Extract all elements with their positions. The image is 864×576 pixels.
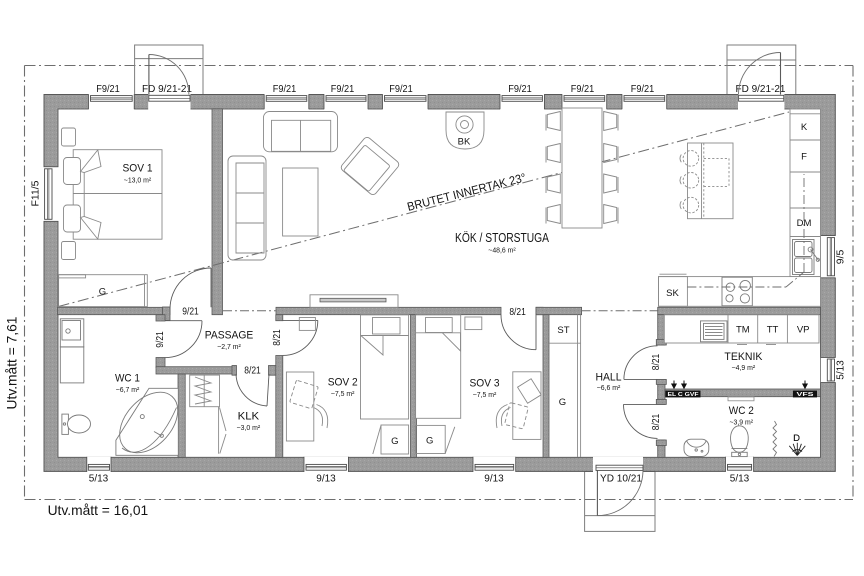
svg-text:ST: ST (557, 325, 569, 336)
svg-text:9/13: 9/13 (316, 474, 336, 485)
svg-text:8/21: 8/21 (244, 366, 261, 377)
svg-text:5/13: 5/13 (836, 360, 847, 380)
svg-text:9/21: 9/21 (182, 307, 199, 318)
svg-text:TM: TM (736, 325, 750, 336)
svg-text:~4,9 m²: ~4,9 m² (732, 365, 756, 372)
svg-text:9/21: 9/21 (155, 331, 166, 348)
svg-text:F11/5: F11/5 (31, 180, 42, 206)
svg-text:~3,0 m²: ~3,0 m² (237, 425, 261, 432)
svg-text:SOV 1: SOV 1 (123, 163, 153, 175)
svg-text:TT: TT (767, 325, 779, 336)
svg-text:~48,6 m²: ~48,6 m² (488, 248, 516, 255)
svg-text:SK: SK (666, 288, 679, 299)
svg-text:PASSAGE: PASSAGE (205, 330, 254, 342)
svg-text:TEKNIK: TEKNIK (724, 351, 762, 363)
svg-text:~3,9 m²: ~3,9 m² (730, 420, 754, 427)
svg-text:8/21: 8/21 (509, 307, 526, 318)
svg-text:~13,0 m²: ~13,0 m² (124, 178, 152, 185)
svg-text:WC 1: WC 1 (115, 373, 140, 385)
svg-text:WC 2: WC 2 (729, 405, 754, 417)
svg-text:~6,6 m²: ~6,6 m² (597, 385, 621, 392)
svg-text:FD 9/21-21: FD 9/21-21 (142, 84, 192, 95)
svg-text:KLK: KLK (238, 411, 260, 423)
svg-text:~7,5 m²: ~7,5 m² (473, 392, 497, 399)
svg-text:F: F (801, 152, 807, 163)
svg-text:F9/21: F9/21 (389, 84, 413, 95)
svg-text:G: G (99, 287, 106, 298)
svg-text:K: K (801, 122, 808, 133)
svg-text:~7,5 m²: ~7,5 m² (331, 391, 355, 398)
svg-text:8/21: 8/21 (651, 353, 662, 370)
svg-text:G: G (426, 436, 433, 447)
svg-text:F9/21: F9/21 (571, 84, 595, 95)
svg-text:KÖK / STORSTUGA: KÖK / STORSTUGA (455, 230, 549, 245)
svg-text:G: G (559, 397, 566, 408)
svg-text:~6,7 m²: ~6,7 m² (116, 387, 140, 394)
svg-text:F9/21: F9/21 (631, 84, 655, 95)
svg-text:YD 10/21: YD 10/21 (600, 474, 642, 485)
svg-text:F9/21: F9/21 (273, 84, 297, 95)
svg-text:HALL: HALL (596, 372, 622, 384)
svg-text:D: D (793, 433, 800, 444)
svg-text:F9/21: F9/21 (96, 84, 120, 95)
svg-text:G: G (391, 436, 398, 447)
svg-text:VP: VP (797, 325, 810, 336)
svg-text:8/21: 8/21 (651, 413, 662, 430)
svg-text:~2,7 m²: ~2,7 m² (217, 344, 241, 351)
svg-text:EL C GVF: EL C GVF (668, 392, 700, 398)
svg-text:SOV 3: SOV 3 (470, 378, 500, 390)
svg-text:Utv.mått = 16,01: Utv.mått = 16,01 (48, 503, 149, 518)
svg-text:9/5: 9/5 (836, 249, 847, 264)
svg-text:VFS: VFS (797, 392, 815, 398)
svg-text:F9/21: F9/21 (508, 84, 532, 95)
svg-text:Utv.mått = 7,61: Utv.mått = 7,61 (5, 317, 20, 410)
svg-text:9/13: 9/13 (484, 474, 504, 485)
svg-text:5/13: 5/13 (89, 474, 109, 485)
svg-text:BK: BK (458, 137, 471, 148)
svg-text:FD 9/21-21: FD 9/21-21 (736, 84, 786, 95)
svg-text:5/13: 5/13 (730, 474, 750, 485)
svg-text:8/21: 8/21 (272, 329, 283, 346)
svg-text:F9/21: F9/21 (331, 84, 355, 95)
svg-text:SOV 2: SOV 2 (328, 377, 358, 389)
